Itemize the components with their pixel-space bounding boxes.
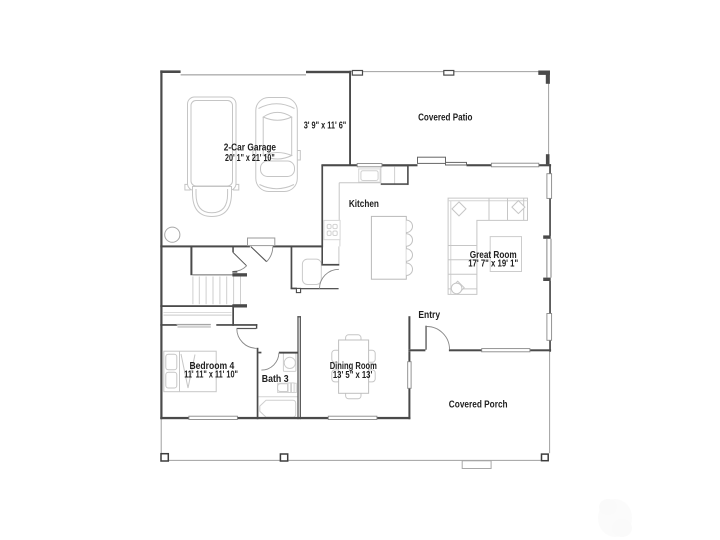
svg-text:Kitchen: Kitchen	[349, 199, 379, 210]
svg-text:13' 5" x 13': 13' 5" x 13'	[333, 370, 372, 381]
svg-text:2-Car Garage: 2-Car Garage	[224, 143, 277, 154]
svg-text:Bath 3: Bath 3	[262, 374, 289, 385]
svg-text:Covered Patio: Covered Patio	[418, 112, 472, 123]
svg-text:Covered Porch: Covered Porch	[449, 400, 508, 411]
svg-text:Entry: Entry	[418, 310, 440, 321]
svg-text:17' 7" x 19' 1": 17' 7" x 19' 1"	[468, 259, 518, 270]
svg-text:20' 1" x 21' 10": 20' 1" x 21' 10"	[225, 153, 275, 164]
svg-text:3' 9" x 11' 6": 3' 9" x 11' 6"	[304, 120, 347, 131]
svg-text:11' 11" x 11' 10": 11' 11" x 11' 10"	[184, 370, 238, 381]
